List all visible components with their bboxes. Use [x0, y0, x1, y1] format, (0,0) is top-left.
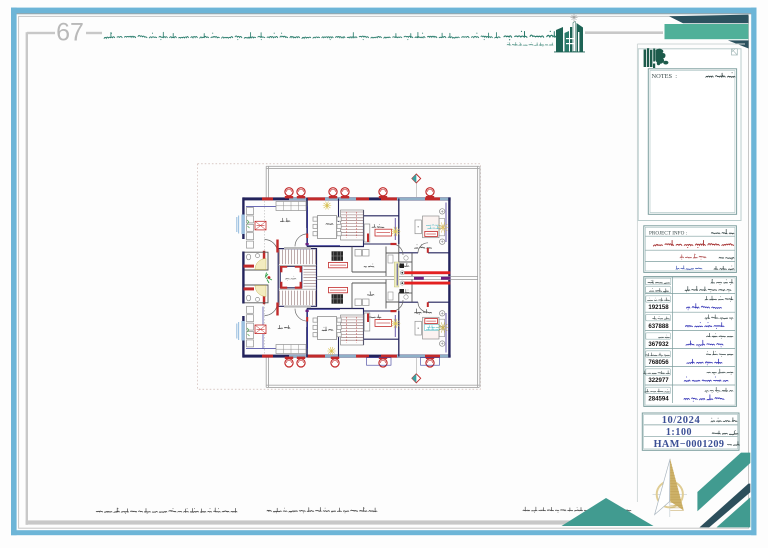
svg-text:10/2024: 10/2024 — [662, 415, 701, 426]
svg-text:67: 67 — [56, 19, 84, 47]
svg-text:637888: 637888 — [648, 323, 669, 330]
svg-text:768056: 768056 — [648, 359, 669, 366]
svg-text:HAM−0001209: HAM−0001209 — [654, 439, 725, 450]
svg-text:PROJECT INFO :: PROJECT INFO : — [649, 230, 688, 236]
svg-text:284594: 284594 — [648, 396, 669, 403]
svg-text:192158: 192158 — [648, 304, 669, 311]
svg-text:367932: 367932 — [648, 341, 669, 348]
svg-text:1:100: 1:100 — [666, 427, 692, 438]
svg-text:322977: 322977 — [648, 377, 669, 384]
svg-text:NOTES :: NOTES : — [652, 73, 678, 80]
